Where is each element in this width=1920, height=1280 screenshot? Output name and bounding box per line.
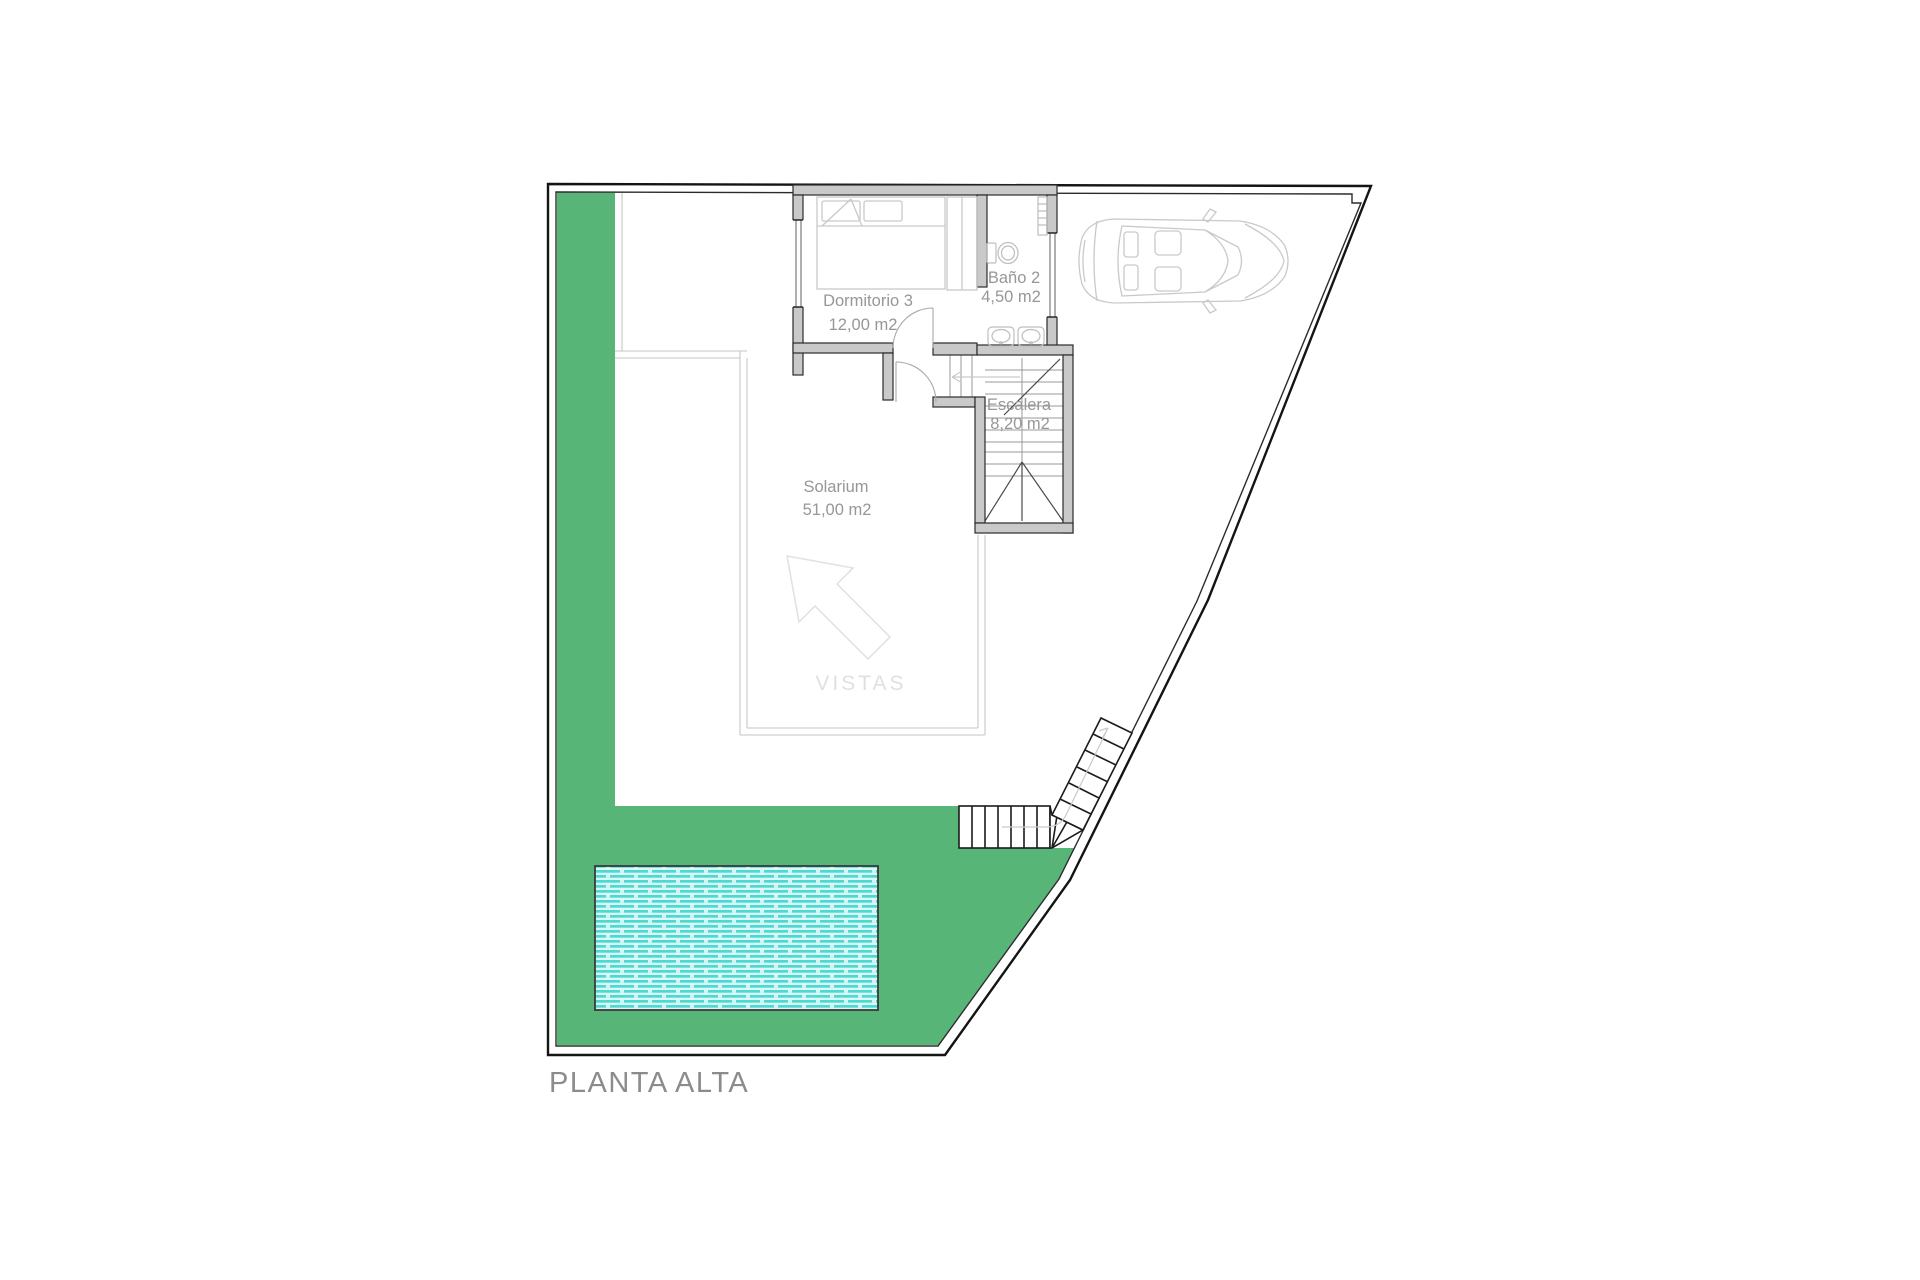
room-label-dormitorio-name: Dormitorio 3 bbox=[823, 292, 913, 310]
vistas-label: VISTAS bbox=[815, 672, 906, 695]
window-left bbox=[791, 220, 805, 307]
room-label-bano-name: Baño 2 bbox=[988, 269, 1040, 287]
plan-title: PLANTA ALTA bbox=[549, 1067, 749, 1099]
window-right bbox=[1045, 233, 1059, 317]
pool bbox=[595, 866, 878, 1010]
room-label-dormitorio-area: 12,00 m2 bbox=[829, 316, 898, 334]
room-label-bano-area: 4,50 m2 bbox=[981, 288, 1041, 306]
room-label-solarium-name: Solarium bbox=[803, 478, 868, 496]
room-label-escalera-area: 8,20 m2 bbox=[990, 415, 1050, 433]
room-label-solarium-area: 51,00 m2 bbox=[803, 501, 872, 519]
floor-plan-canvas: Dormitorio 3 12,00 m2 Baño 2 4,50 m2 Esc… bbox=[0, 0, 1920, 1280]
room-label-escalera-name: Escalera bbox=[987, 396, 1052, 414]
floor-plan-drawing: Dormitorio 3 12,00 m2 Baño 2 4,50 m2 Esc… bbox=[0, 0, 1920, 1280]
